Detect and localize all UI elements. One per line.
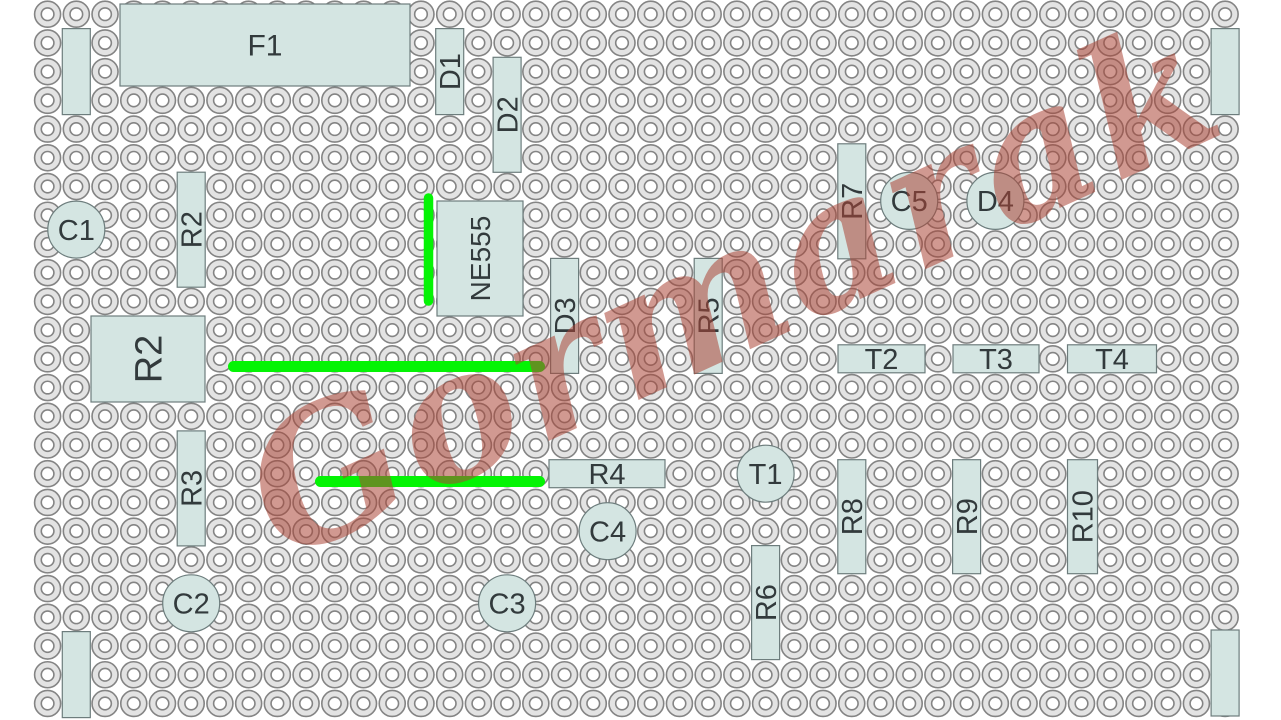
component-label: D2 xyxy=(492,96,524,133)
component-C3: C3 xyxy=(479,575,536,632)
hole xyxy=(982,461,1008,487)
hole-center xyxy=(989,554,1002,567)
hole xyxy=(408,30,434,56)
hole xyxy=(867,375,893,401)
hole-center xyxy=(874,611,887,624)
hole xyxy=(1183,403,1209,429)
hole-center xyxy=(357,611,370,624)
hole-center xyxy=(1075,697,1088,710)
hole-center xyxy=(501,640,514,653)
hole-center xyxy=(731,94,744,107)
hole xyxy=(63,174,89,200)
hole-center xyxy=(788,496,801,509)
component-label: R8 xyxy=(837,498,869,535)
hole-center xyxy=(70,467,83,480)
hole xyxy=(236,260,262,286)
hole-center xyxy=(70,611,83,624)
board-canvas: F1D1D2R2NE555D3R2R5R7T2T3T4R3R4R6R8R9R10… xyxy=(0,0,1281,720)
hole-center xyxy=(874,554,887,567)
hole-center xyxy=(731,668,744,681)
hole xyxy=(379,576,405,602)
hole xyxy=(666,87,692,113)
hole xyxy=(178,87,204,113)
hole xyxy=(437,633,463,659)
hole-center xyxy=(1047,467,1060,480)
hole-center xyxy=(99,640,112,653)
hole-center xyxy=(1161,439,1174,452)
component-label: C4 xyxy=(589,516,626,548)
hole-center xyxy=(41,410,54,423)
hole-center xyxy=(472,123,485,136)
hole-center xyxy=(673,37,686,50)
hole-center xyxy=(214,180,227,193)
hole xyxy=(1040,518,1066,544)
hole-center xyxy=(156,410,169,423)
hole xyxy=(839,59,865,85)
hole xyxy=(695,576,721,602)
hole xyxy=(810,375,836,401)
hole-center xyxy=(874,439,887,452)
hole xyxy=(753,59,779,85)
hole xyxy=(982,375,1008,401)
hole-center xyxy=(644,697,657,710)
hole-center xyxy=(357,668,370,681)
hole-center xyxy=(731,697,744,710)
hole xyxy=(351,87,377,113)
hole-center xyxy=(156,668,169,681)
hole xyxy=(264,202,290,228)
hole-center xyxy=(156,123,169,136)
hole xyxy=(63,403,89,429)
hole-center xyxy=(903,37,916,50)
hole-center xyxy=(185,554,198,567)
hole xyxy=(552,547,578,573)
hole-center xyxy=(70,152,83,165)
component-label: F1 xyxy=(247,30,282,63)
hole xyxy=(1011,662,1037,688)
hole xyxy=(236,604,262,630)
hole-center xyxy=(156,697,169,710)
hole-center xyxy=(1219,554,1232,567)
hole xyxy=(1212,231,1238,257)
hole-center xyxy=(1219,295,1232,308)
hole-center xyxy=(759,94,772,107)
hole-center xyxy=(443,123,456,136)
hole-center xyxy=(70,439,83,452)
hole-center xyxy=(731,439,744,452)
hole-center xyxy=(1161,697,1174,710)
hole-center xyxy=(415,697,428,710)
hole-center xyxy=(415,611,428,624)
hole xyxy=(925,690,951,716)
hole xyxy=(351,690,377,716)
hole xyxy=(92,403,118,429)
component-label: C3 xyxy=(489,588,526,620)
hole-center xyxy=(1104,554,1117,567)
hole xyxy=(1183,288,1209,314)
hole xyxy=(236,202,262,228)
hole xyxy=(1040,489,1066,515)
hole-center xyxy=(214,640,227,653)
hole xyxy=(925,662,951,688)
hole xyxy=(724,604,750,630)
hole xyxy=(293,690,319,716)
hole xyxy=(121,174,147,200)
component-D2: D2 xyxy=(492,57,524,172)
hole xyxy=(724,518,750,544)
hole xyxy=(379,288,405,314)
hole xyxy=(954,30,980,56)
hole-center xyxy=(1190,295,1203,308)
hole-center xyxy=(214,324,227,337)
hole xyxy=(666,576,692,602)
hole xyxy=(638,662,664,688)
hole-center xyxy=(960,324,973,337)
hole-center xyxy=(1133,410,1146,423)
hole-center xyxy=(817,410,830,423)
hole-center xyxy=(1219,582,1232,595)
hole-center xyxy=(558,525,571,538)
hole-center xyxy=(1104,611,1117,624)
hole-center xyxy=(1133,467,1146,480)
hole xyxy=(1097,633,1123,659)
hole xyxy=(925,403,951,429)
hole-center xyxy=(214,94,227,107)
hole-center xyxy=(1047,582,1060,595)
hole xyxy=(867,403,893,429)
hole xyxy=(954,576,980,602)
hole xyxy=(982,633,1008,659)
hole xyxy=(839,633,865,659)
hole xyxy=(322,662,348,688)
hole xyxy=(666,30,692,56)
hole-center xyxy=(443,582,456,595)
hole-center xyxy=(587,123,600,136)
hole xyxy=(1126,260,1152,286)
hole xyxy=(896,461,922,487)
hole xyxy=(1126,576,1152,602)
hole-center xyxy=(530,554,543,567)
hole-center xyxy=(329,152,342,165)
hole-center xyxy=(874,525,887,538)
hole-center xyxy=(357,295,370,308)
hole-center xyxy=(357,266,370,279)
hole-center xyxy=(1018,525,1031,538)
hole-center xyxy=(587,152,600,165)
hole-center xyxy=(903,668,916,681)
hole-center xyxy=(99,467,112,480)
hole-center xyxy=(1018,582,1031,595)
hole-center xyxy=(271,640,284,653)
hole-center xyxy=(1047,668,1060,681)
hole xyxy=(1155,375,1181,401)
hole xyxy=(666,1,692,27)
hole xyxy=(351,116,377,142)
hole-center xyxy=(932,525,945,538)
hole-center xyxy=(472,37,485,50)
hole-center xyxy=(644,37,657,50)
hole-center xyxy=(99,37,112,50)
hole-center xyxy=(271,180,284,193)
hole-center xyxy=(702,611,715,624)
hole xyxy=(264,604,290,630)
hole xyxy=(494,174,520,200)
hole xyxy=(839,432,865,458)
hole-center xyxy=(214,525,227,538)
hole-center xyxy=(1047,496,1060,509)
hole-center xyxy=(731,410,744,423)
hole xyxy=(236,662,262,688)
hole xyxy=(982,604,1008,630)
hole-center xyxy=(731,582,744,595)
hole xyxy=(1212,518,1238,544)
hole xyxy=(523,690,549,716)
hole xyxy=(351,260,377,286)
hole xyxy=(379,633,405,659)
hole-center xyxy=(558,697,571,710)
hole xyxy=(264,288,290,314)
hole-center xyxy=(242,582,255,595)
hole xyxy=(781,518,807,544)
hole-center xyxy=(242,94,255,107)
hole xyxy=(982,662,1008,688)
hole-center xyxy=(616,697,629,710)
hole-center xyxy=(989,611,1002,624)
hole-center xyxy=(731,640,744,653)
hole-center xyxy=(960,640,973,653)
hole xyxy=(35,604,61,630)
hole-center xyxy=(386,266,399,279)
hole xyxy=(322,633,348,659)
hole xyxy=(666,633,692,659)
hole xyxy=(207,116,233,142)
hole xyxy=(1126,375,1152,401)
hole xyxy=(63,461,89,487)
hole-center xyxy=(329,266,342,279)
hole-center xyxy=(70,496,83,509)
hole-center xyxy=(329,295,342,308)
hole-center xyxy=(1161,381,1174,394)
hole xyxy=(552,604,578,630)
hole-center xyxy=(903,410,916,423)
hole xyxy=(580,576,606,602)
hole-center xyxy=(300,152,313,165)
hole xyxy=(781,576,807,602)
hole-center xyxy=(127,152,140,165)
hole xyxy=(810,432,836,458)
hole-center xyxy=(903,496,916,509)
hole-center xyxy=(788,94,801,107)
hole xyxy=(207,489,233,515)
hole-center xyxy=(644,611,657,624)
hole xyxy=(264,116,290,142)
hole-center xyxy=(644,65,657,78)
hole xyxy=(580,145,606,171)
hole xyxy=(1126,489,1152,515)
hole-center xyxy=(1190,697,1203,710)
component-label: R3 xyxy=(176,470,208,507)
hole-center xyxy=(1219,266,1232,279)
hole-center xyxy=(99,554,112,567)
hole xyxy=(982,547,1008,573)
component-label: R2 xyxy=(128,335,170,384)
hole xyxy=(207,662,233,688)
hole xyxy=(149,662,175,688)
hole-center xyxy=(616,65,629,78)
hole xyxy=(552,145,578,171)
hole xyxy=(1069,403,1095,429)
hole-center xyxy=(415,180,428,193)
hole-center xyxy=(989,697,1002,710)
hole-center xyxy=(357,324,370,337)
hole-center xyxy=(989,8,1002,21)
hole-center xyxy=(271,238,284,251)
hole-center xyxy=(329,611,342,624)
hole-center xyxy=(616,8,629,21)
hole xyxy=(810,662,836,688)
hole-center xyxy=(415,37,428,50)
hole xyxy=(1212,576,1238,602)
hole-center xyxy=(1190,324,1203,337)
hole-center xyxy=(472,152,485,165)
hole xyxy=(1011,633,1037,659)
hole-center xyxy=(932,37,945,50)
hole-center xyxy=(530,94,543,107)
hole-center xyxy=(759,37,772,50)
hole xyxy=(982,288,1008,314)
hole-center xyxy=(558,582,571,595)
hole xyxy=(1183,231,1209,257)
hole xyxy=(178,288,204,314)
hole-center xyxy=(1075,410,1088,423)
hole xyxy=(494,518,520,544)
hole xyxy=(523,202,549,228)
hole-center xyxy=(788,410,801,423)
hole xyxy=(666,547,692,573)
hole-center xyxy=(300,123,313,136)
hole xyxy=(293,288,319,314)
hole-center xyxy=(1219,381,1232,394)
hole-center xyxy=(1133,582,1146,595)
hole-center xyxy=(156,209,169,222)
hole-center xyxy=(242,324,255,337)
hole-center xyxy=(501,37,514,50)
hole xyxy=(121,461,147,487)
hole-center xyxy=(1133,554,1146,567)
hole-center xyxy=(530,65,543,78)
hole xyxy=(379,690,405,716)
hole xyxy=(638,116,664,142)
hole xyxy=(1212,288,1238,314)
hole xyxy=(954,690,980,716)
hole-center xyxy=(1018,295,1031,308)
hole xyxy=(465,59,491,85)
hole-center xyxy=(1190,209,1203,222)
hole-center xyxy=(386,640,399,653)
hole xyxy=(781,633,807,659)
hole xyxy=(695,461,721,487)
hole xyxy=(1040,662,1066,688)
hole xyxy=(781,59,807,85)
hole-center xyxy=(127,266,140,279)
hole-center xyxy=(242,611,255,624)
hole-center xyxy=(185,94,198,107)
hole xyxy=(552,690,578,716)
hole-center xyxy=(214,238,227,251)
hole xyxy=(810,1,836,27)
hole-center xyxy=(932,8,945,21)
hole xyxy=(322,174,348,200)
hole-center xyxy=(127,496,140,509)
hole-center xyxy=(845,439,858,452)
hole xyxy=(552,174,578,200)
hole xyxy=(379,116,405,142)
hole xyxy=(810,461,836,487)
hole xyxy=(437,174,463,200)
hole-center xyxy=(530,123,543,136)
hole xyxy=(695,432,721,458)
hole-center xyxy=(788,8,801,21)
hole xyxy=(465,87,491,113)
hole xyxy=(1069,260,1095,286)
hole-center xyxy=(1018,611,1031,624)
hole-center xyxy=(214,266,227,279)
hole xyxy=(896,489,922,515)
hole xyxy=(552,576,578,602)
hole-center xyxy=(127,94,140,107)
hole-center xyxy=(558,611,571,624)
hole xyxy=(121,518,147,544)
hole-center xyxy=(845,582,858,595)
hole-center xyxy=(214,295,227,308)
hole xyxy=(638,576,664,602)
hole-center xyxy=(1161,238,1174,251)
hole xyxy=(1183,317,1209,343)
hole xyxy=(1069,317,1095,343)
hole xyxy=(149,518,175,544)
hole-center xyxy=(903,439,916,452)
hole-center xyxy=(702,439,715,452)
hole-center xyxy=(616,640,629,653)
hole xyxy=(92,87,118,113)
hole xyxy=(322,604,348,630)
hole xyxy=(925,375,951,401)
hole xyxy=(121,576,147,602)
hole xyxy=(207,202,233,228)
hole-center xyxy=(702,37,715,50)
hole xyxy=(810,633,836,659)
hole-center xyxy=(731,123,744,136)
hole xyxy=(92,260,118,286)
hole xyxy=(322,145,348,171)
hole-center xyxy=(731,152,744,165)
hole-center xyxy=(759,8,772,21)
hole xyxy=(437,1,463,27)
hole-center xyxy=(903,697,916,710)
hole xyxy=(1097,260,1123,286)
hole xyxy=(1183,432,1209,458)
hole xyxy=(351,231,377,257)
hole xyxy=(121,288,147,314)
hole xyxy=(92,288,118,314)
hole xyxy=(781,690,807,716)
hole xyxy=(1183,662,1209,688)
hole xyxy=(523,518,549,544)
hole-center xyxy=(1133,238,1146,251)
hole xyxy=(1183,518,1209,544)
hole-center xyxy=(443,180,456,193)
hole-center xyxy=(702,496,715,509)
